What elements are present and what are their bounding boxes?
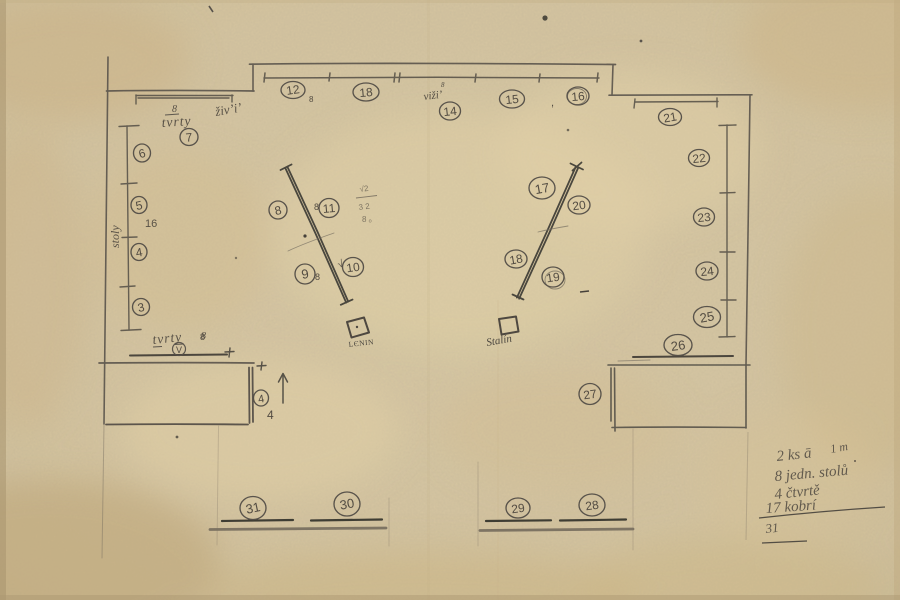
svg-text:tvrty: tvrty: [161, 113, 192, 130]
svg-text:25: 25: [699, 308, 716, 325]
svg-text:30: 30: [339, 495, 356, 512]
svg-text:16: 16: [145, 218, 157, 230]
svg-text:,: ,: [551, 97, 554, 109]
svg-text:31: 31: [244, 499, 261, 517]
svg-text:8 ₒ: 8 ₒ: [362, 215, 372, 224]
svg-text:4: 4: [267, 408, 274, 422]
svg-text:18: 18: [359, 85, 374, 100]
svg-text:27: 27: [582, 387, 597, 403]
svg-text:26: 26: [670, 337, 686, 354]
svg-text:19: 19: [545, 270, 560, 286]
svg-text:16: 16: [571, 89, 586, 104]
svg-text:8: 8: [172, 104, 177, 115]
svg-text:3 2: 3 2: [358, 201, 371, 212]
svg-text:8: 8: [309, 95, 314, 104]
svg-text:18: 18: [508, 251, 524, 267]
svg-text:22: 22: [692, 151, 707, 166]
svg-text:8: 8: [315, 272, 320, 282]
svg-text:17: 17: [534, 180, 551, 197]
svg-text:14: 14: [443, 104, 458, 119]
svg-text:12: 12: [285, 82, 300, 98]
svg-text:tvrty: tvrty: [152, 329, 183, 347]
svg-text:11: 11: [322, 201, 336, 216]
svg-text:8: 8: [314, 202, 319, 212]
svg-text:15: 15: [505, 92, 520, 107]
svg-text:23: 23: [697, 210, 712, 225]
svg-text:10: 10: [345, 260, 360, 276]
svg-text:V: V: [176, 345, 182, 355]
svg-text:stoly: stoly: [108, 225, 122, 248]
svg-text:24: 24: [700, 264, 715, 279]
svg-text:21: 21: [662, 109, 678, 125]
svg-text:28: 28: [584, 498, 599, 514]
svg-text:8: 8: [201, 331, 206, 342]
svg-text:20: 20: [571, 198, 586, 214]
svg-text:vižiʼ: vižiʼ: [423, 89, 444, 103]
svg-text:31: 31: [764, 520, 779, 536]
svg-text:29: 29: [510, 501, 525, 517]
svg-text:8: 8: [441, 81, 445, 89]
